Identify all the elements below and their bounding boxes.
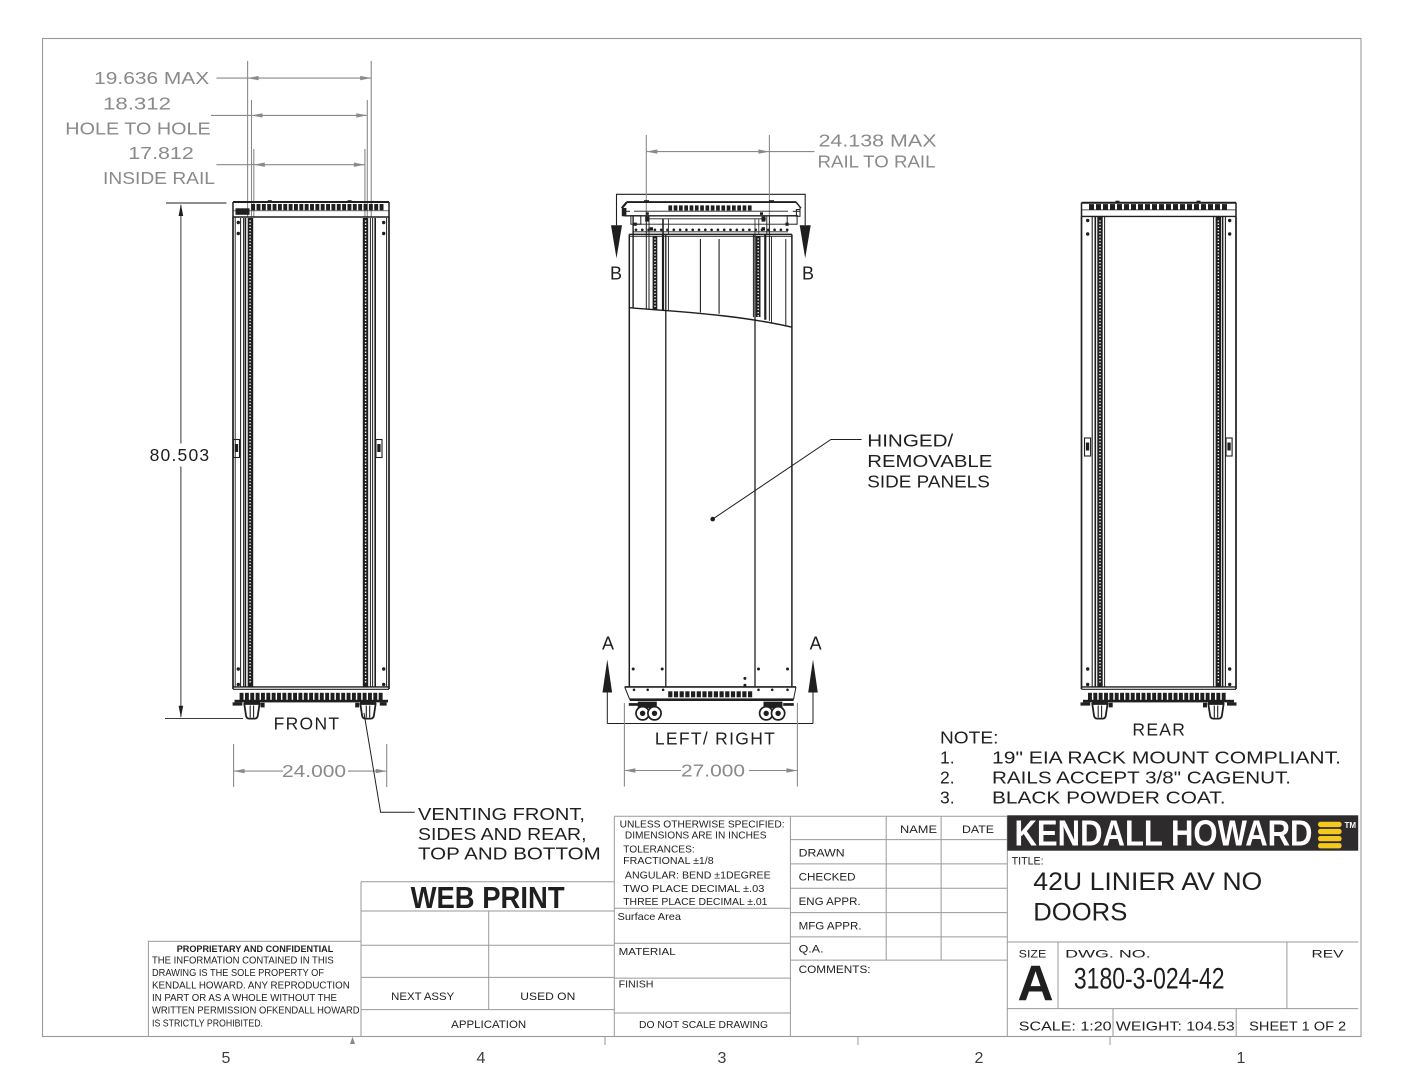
svg-text:ENG APPR.: ENG APPR. <box>799 896 861 908</box>
svg-text:27.000: 27.000 <box>681 761 745 781</box>
svg-text:BLACK POWDER COAT.: BLACK POWDER COAT. <box>992 788 1226 808</box>
svg-text:MFG APPR.: MFG APPR. <box>799 921 862 933</box>
svg-text:LEFT/ RIGHT: LEFT/ RIGHT <box>655 729 776 749</box>
svg-text:PROPRIETARY AND CONFIDENTIAL: PROPRIETARY AND CONFIDENTIAL <box>177 944 334 955</box>
svg-text:HINGED/: HINGED/ <box>867 430 953 450</box>
svg-text:TWO PLACE DECIMAL ±.03: TWO PLACE DECIMAL ±.03 <box>623 883 764 895</box>
svg-text:DO NOT SCALE DRAWING: DO NOT SCALE DRAWING <box>639 1019 768 1031</box>
svg-text:SIDE PANELS: SIDE PANELS <box>867 471 990 491</box>
svg-text:IN PART OR AS A WHOLE WITHOUT: IN PART OR AS A WHOLE WITHOUT THE <box>152 993 337 1004</box>
svg-text:KENDALL HOWARD. ANY REPRODUCT: KENDALL HOWARD. ANY REPRODUCTION <box>152 981 350 992</box>
svg-text:ANGULAR: BEND ±1DEGREE: ANGULAR: BEND ±1DEGREE <box>625 870 771 882</box>
svg-text:DRAWN: DRAWN <box>799 848 845 860</box>
svg-text:KENDALL HOWARD: KENDALL HOWARD <box>1015 813 1313 854</box>
svg-text:Q.A.: Q.A. <box>799 944 824 956</box>
svg-text:4: 4 <box>477 1050 486 1067</box>
svg-text:24.138 MAX: 24.138 MAX <box>819 131 937 151</box>
svg-text:INSIDE RAIL: INSIDE RAIL <box>103 168 215 188</box>
svg-text:SHEET 1 OF 2: SHEET 1 OF 2 <box>1249 1019 1346 1034</box>
svg-text:Surface Area: Surface Area <box>618 911 682 923</box>
svg-text:3.: 3. <box>940 788 955 808</box>
svg-text:3: 3 <box>718 1050 727 1067</box>
svg-text:RAILS ACCEPT 3/8" CAGENUT.: RAILS ACCEPT 3/8" CAGENUT. <box>992 768 1291 788</box>
svg-text:SCALE: 1:20: SCALE: 1:20 <box>1019 1019 1112 1034</box>
svg-text:WEB PRINT: WEB PRINT <box>411 880 565 915</box>
svg-text:B: B <box>610 263 622 283</box>
svg-text:1.: 1. <box>940 748 955 768</box>
svg-text:A: A <box>1017 956 1053 1012</box>
svg-text:REV: REV <box>1312 949 1345 961</box>
svg-text:MATERIAL: MATERIAL <box>619 946 676 958</box>
svg-text:24.000: 24.000 <box>282 761 346 781</box>
svg-text:B: B <box>802 263 814 283</box>
svg-text:NAME: NAME <box>900 824 937 836</box>
svg-text:19.636 MAX: 19.636 MAX <box>94 68 209 88</box>
svg-text:FRACTIONAL ±1/8: FRACTIONAL ±1/8 <box>623 855 714 867</box>
svg-text:NOTE:: NOTE: <box>940 728 998 748</box>
svg-text:DATE: DATE <box>962 824 994 836</box>
svg-text:18.312: 18.312 <box>103 94 171 114</box>
svg-text:80.503: 80.503 <box>150 445 211 465</box>
svg-text:5: 5 <box>222 1050 231 1067</box>
svg-text:COMMENTS:: COMMENTS: <box>799 964 871 976</box>
svg-text:TITLE:: TITLE: <box>1012 856 1044 868</box>
svg-text:RAIL TO RAIL: RAIL TO RAIL <box>818 152 936 172</box>
svg-text:HOLE TO HOLE: HOLE TO HOLE <box>65 118 210 138</box>
svg-text:THREE PLACE DECIMAL ±.01: THREE PLACE DECIMAL ±.01 <box>623 896 767 908</box>
svg-text:DWG. NO.: DWG. NO. <box>1065 949 1151 961</box>
svg-text:TOLERANCES:: TOLERANCES: <box>623 843 695 855</box>
svg-text:A: A <box>810 634 822 654</box>
svg-text:IS STRICTLY PROHIBITED.: IS STRICTLY PROHIBITED. <box>152 1018 263 1029</box>
svg-text:3180-3-024-42: 3180-3-024-42 <box>1074 963 1225 996</box>
svg-text:THE INFORMATION CONTAINED IN T: THE INFORMATION CONTAINED IN THIS <box>152 956 334 967</box>
svg-text:42U LINIER AV NO: 42U LINIER AV NO <box>1033 868 1262 896</box>
svg-text:UNLESS OTHERWISE SPECIFIED:: UNLESS OTHERWISE SPECIFIED: <box>620 818 785 830</box>
svg-text:TOP AND BOTTOM: TOP AND BOTTOM <box>418 844 601 864</box>
svg-text:CHECKED: CHECKED <box>799 871 856 883</box>
svg-text:APPLICATION: APPLICATION <box>451 1019 526 1031</box>
svg-text:A: A <box>602 634 614 654</box>
svg-text:VENTING FRONT,: VENTING FRONT, <box>418 804 585 824</box>
svg-text:FRONT: FRONT <box>274 714 341 734</box>
svg-text:DOORS: DOORS <box>1033 898 1127 926</box>
svg-text:2: 2 <box>975 1050 984 1067</box>
svg-text:REMOVABLE: REMOVABLE <box>867 451 992 471</box>
svg-text:DRAWING IS THE SOLE PROPERTY O: DRAWING IS THE SOLE PROPERTY OF <box>152 968 324 979</box>
svg-text:WEIGHT: 104.53: WEIGHT: 104.53 <box>1116 1019 1235 1034</box>
svg-text:REAR: REAR <box>1132 720 1186 740</box>
svg-text:19" EIA RACK MOUNT COMPLIANT.: 19" EIA RACK MOUNT COMPLIANT. <box>992 748 1341 768</box>
svg-text:NEXT ASSY: NEXT ASSY <box>391 991 455 1003</box>
svg-text:USED ON: USED ON <box>520 991 575 1003</box>
svg-text:TM: TM <box>1345 821 1357 830</box>
svg-text:2.: 2. <box>940 768 955 788</box>
svg-text:FINISH: FINISH <box>619 979 654 991</box>
svg-text:SIDES AND REAR,: SIDES AND REAR, <box>418 824 587 844</box>
svg-text:WRITTEN PERMISSION OFKENDALL H: WRITTEN PERMISSION OFKENDALL HOWARD <box>152 1006 360 1017</box>
svg-text:DIMENSIONS ARE IN INCHES: DIMENSIONS ARE IN INCHES <box>625 830 767 842</box>
svg-text:17.812: 17.812 <box>128 143 194 163</box>
svg-text:1: 1 <box>1237 1050 1246 1067</box>
